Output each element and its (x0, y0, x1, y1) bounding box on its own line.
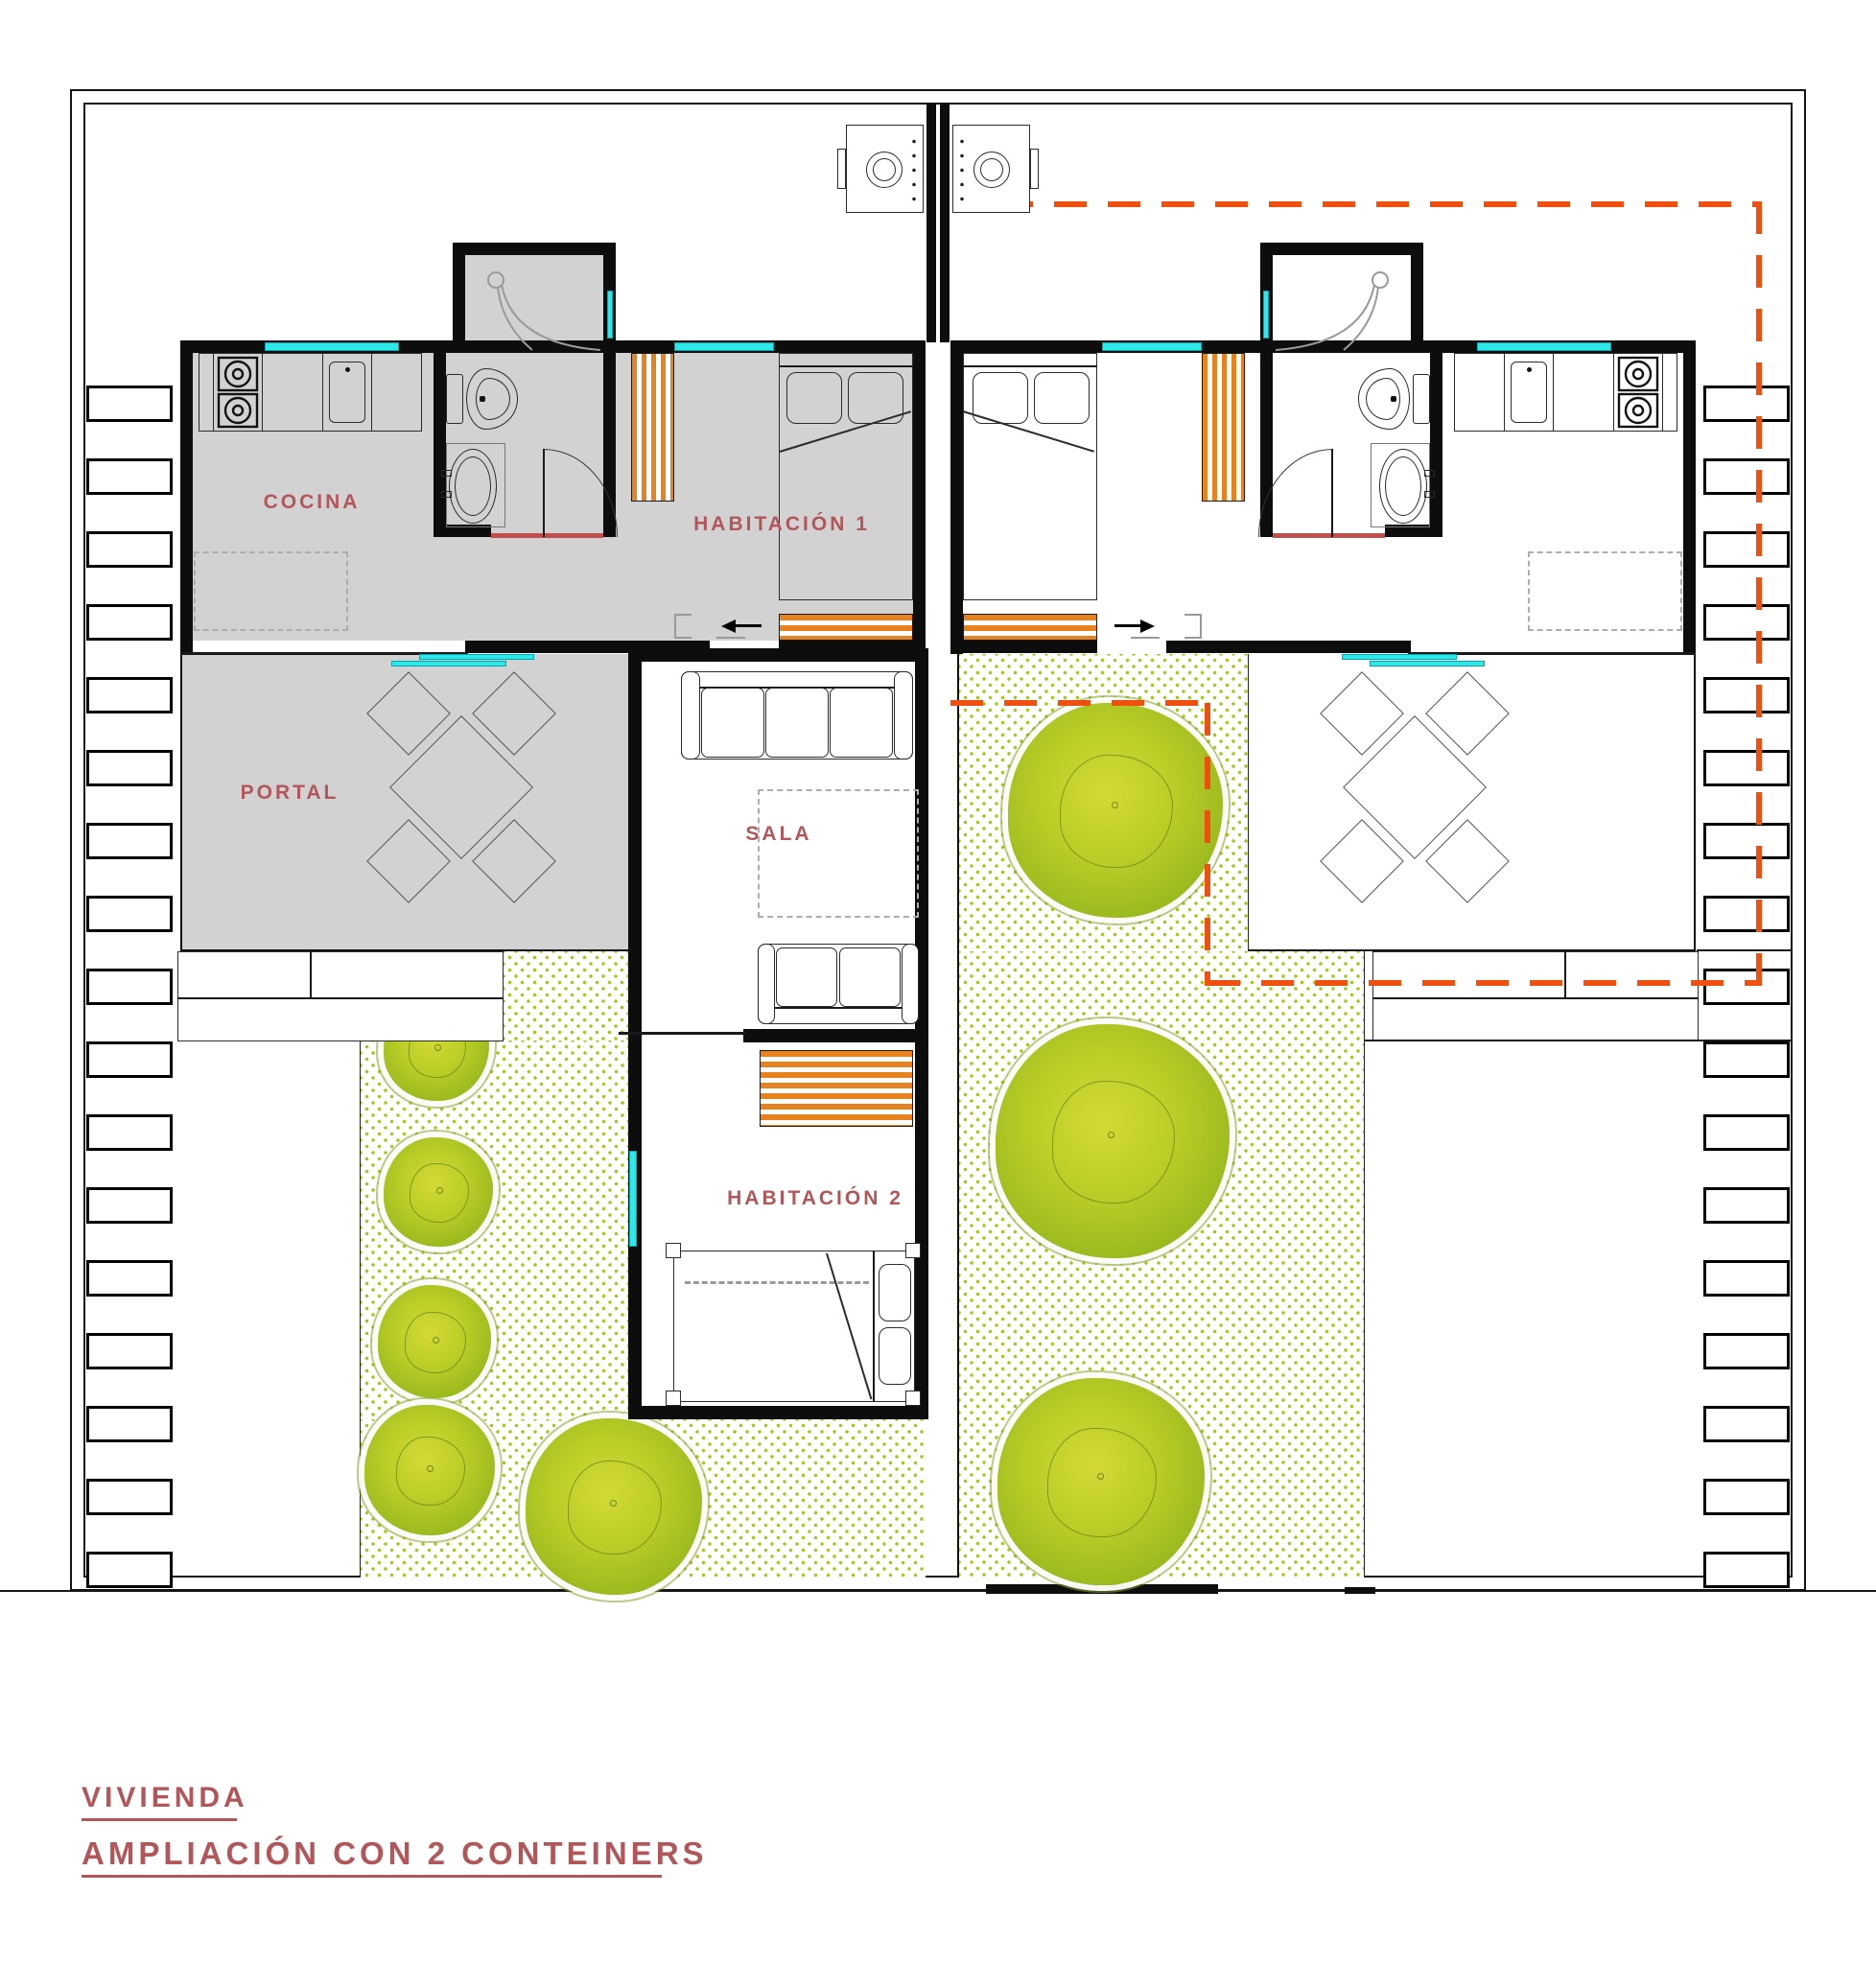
window-shower-right (1263, 291, 1269, 339)
party-wall (926, 103, 936, 342)
sofa2-back (775, 1007, 902, 1009)
drawing-title-line1: VIVIENDA (82, 1782, 248, 1814)
title-underline-2 (82, 1875, 662, 1878)
edge-box (86, 677, 173, 713)
edge-box (86, 1187, 173, 1224)
tree-small-4 (364, 1405, 495, 1535)
lavatory-left-tap (441, 491, 452, 498)
closet-left (631, 353, 674, 502)
tree-right-2 (996, 1024, 1230, 1258)
edge-box (86, 1552, 173, 1588)
sliding-door-portal-left (391, 661, 506, 666)
bed1-left-pillow (786, 372, 842, 424)
extension-outline-mid-h (950, 700, 1205, 706)
edge-box (86, 1260, 173, 1297)
toilet-right-tank (1413, 374, 1430, 424)
steps-right (1372, 951, 1699, 1041)
label-portal: PORTAL (194, 782, 386, 805)
sofa3-cushion (701, 688, 764, 758)
bed2-post (905, 1391, 921, 1406)
extension-outline-bottom (1208, 980, 1762, 986)
edge-box (1703, 750, 1790, 786)
toilet-left-tank (446, 374, 463, 424)
sofa2-arm (758, 944, 775, 1024)
drawing-title-line2: AMPLIACIÓN CON 2 CONTEINERS (82, 1835, 708, 1872)
extension-outline-right (1756, 201, 1762, 986)
steps-left-divider-v (310, 951, 312, 999)
washer-left-door-inner-icon (873, 158, 896, 181)
edge-box (86, 604, 173, 641)
edge-box (1703, 1333, 1790, 1369)
washer-right-door-inner-icon (980, 158, 1003, 181)
bed2-pillow (879, 1327, 911, 1385)
closet-right (1202, 353, 1245, 502)
bed1-right-pillow (1034, 372, 1090, 424)
window-hab1-left (674, 342, 774, 351)
lavatory-right-tap (1424, 491, 1435, 498)
wall (453, 243, 465, 352)
entry-step-right (1131, 637, 1160, 639)
garden-left-upper (504, 951, 628, 1041)
ledge-line (619, 1032, 745, 1035)
washer-right-buttons (957, 134, 967, 205)
sliding-door-portal-right (1370, 661, 1485, 666)
wall (434, 353, 446, 537)
sala-rug (758, 789, 919, 918)
edge-box (1703, 604, 1790, 641)
wall (1683, 340, 1696, 654)
lavatory-left-tap (441, 470, 452, 477)
sofa3-arm (681, 671, 700, 760)
label-habitacion2: HABITACIÓN 2 (671, 1187, 959, 1210)
shower-curtain-left-icon (465, 255, 603, 352)
edge-box (1703, 1114, 1790, 1151)
bed2-centerline (685, 1281, 869, 1284)
edge-box (1703, 677, 1790, 713)
washer-left-buttons (909, 134, 919, 205)
door-leaf-bath-left (543, 449, 545, 537)
lavatory-right-tap (1424, 470, 1435, 477)
bed2-post (666, 1391, 681, 1406)
bed1-left-headboard (779, 365, 913, 367)
edge-box (1703, 896, 1790, 932)
wall (180, 340, 193, 654)
edge-box (1703, 1552, 1790, 1588)
site-wall-segment (986, 1584, 1218, 1594)
tree-right-1 (1008, 703, 1223, 918)
wall (1260, 243, 1423, 255)
edge-box (86, 1479, 173, 1515)
edge-box (1703, 1479, 1790, 1515)
title-underline-1 (82, 1818, 237, 1821)
steps-right-divider-h (1372, 997, 1699, 999)
sofa3-arm (894, 671, 913, 760)
bed1-left-bench (779, 614, 913, 641)
bed2-post (666, 1243, 681, 1258)
label-sala: SALA (683, 823, 875, 846)
edge-box (86, 1041, 173, 1078)
future-counter-left (194, 551, 348, 631)
edge-box (1703, 1406, 1790, 1442)
sliding-door-portal-left (419, 654, 534, 660)
entry-step-left (716, 637, 745, 639)
entry-bracket-left (674, 614, 692, 639)
stove-left-burners-icon (213, 353, 263, 432)
wall (628, 648, 928, 662)
entry-bracket-right (1184, 614, 1202, 639)
kitchen-sink-right-drain (1527, 367, 1532, 372)
sofa3-cushion (830, 688, 893, 758)
wall (1430, 353, 1442, 537)
label-cocina: COCINA (216, 491, 408, 514)
slat-closet (760, 1050, 913, 1127)
edge-box (1703, 531, 1790, 568)
site-wall-segment-small (1345, 1587, 1375, 1594)
lavatory-right-basin-inner (1385, 456, 1421, 516)
wall (453, 243, 616, 255)
edge-box (86, 896, 173, 932)
edge-box (86, 386, 173, 422)
edge-box (86, 531, 173, 568)
edge-box (86, 1406, 173, 1442)
wall (1411, 243, 1423, 352)
edge-box (1703, 1187, 1790, 1224)
sliding-door-portal-right (1342, 654, 1457, 660)
extension-outline-mid-v (1205, 703, 1210, 986)
edge-box (1703, 969, 1790, 1005)
bed2-pillow (879, 1264, 911, 1321)
wall (913, 340, 926, 654)
wall (950, 340, 963, 654)
wall (950, 641, 1097, 653)
bed1-right-headboard (963, 365, 1097, 367)
future-counter-right (1528, 551, 1682, 631)
wall (628, 1406, 928, 1419)
tree-large-left (526, 1418, 702, 1595)
window-cocina-right (1477, 342, 1611, 351)
bed2-pillow-line (873, 1251, 875, 1402)
entry-arrow-right-line (1114, 624, 1141, 627)
entry-arrow-left-icon (721, 620, 736, 633)
entry-arrow-left-line (735, 624, 762, 627)
edge-box (86, 1114, 173, 1151)
edge-box (1703, 386, 1790, 422)
edge-box (86, 750, 173, 786)
steps-left-divider-h (177, 997, 504, 999)
edge-box (1703, 458, 1790, 495)
edge-box (1703, 1041, 1790, 1078)
edge-box (1703, 823, 1790, 859)
window-hab1-right (1102, 342, 1202, 351)
sofa3-cushion (765, 688, 829, 758)
paving-line-right (1365, 1040, 1793, 1041)
sofa2-cushion (839, 947, 901, 1007)
shower-curtain-right-icon (1273, 255, 1411, 352)
lavatory-left-basin-inner (455, 456, 491, 516)
label-habitacion1: HABITACIÓN 1 (638, 513, 926, 536)
extension-outline-top (1000, 201, 1762, 207)
edge-box (86, 823, 173, 859)
window-cocina-left (265, 342, 399, 351)
tree-right-3 (997, 1378, 1205, 1585)
edge-box (1703, 1260, 1790, 1297)
washer-right-latch (1030, 149, 1039, 189)
bed2-post (905, 1243, 921, 1258)
edge-box (86, 1333, 173, 1369)
window-shower-left (607, 291, 613, 339)
architectural-drawing: { "drawing": { "title_line1": "VIVIENDA"… (0, 0, 1876, 1964)
tree-small-3 (378, 1285, 491, 1398)
steps-right-divider-v (1564, 951, 1566, 999)
toilet-left-flush (480, 396, 485, 402)
edge-box (86, 458, 173, 495)
wall (743, 1029, 928, 1042)
entry-arrow-right-icon (1140, 620, 1155, 633)
toilet-right-flush (1391, 396, 1396, 402)
wall (1166, 641, 1411, 653)
kitchen-sink-left-drain (345, 367, 350, 372)
steps-left (177, 951, 504, 1041)
paving-line-right2 (1697, 949, 1793, 951)
sofa2-arm (902, 944, 919, 1024)
tree-small-2 (384, 1137, 493, 1247)
party-wall (940, 103, 950, 342)
washer-left-latch (837, 149, 846, 189)
door-leaf-bath-right (1331, 449, 1333, 537)
stove-right-burners-icon (1613, 353, 1663, 432)
window-hab2 (629, 1151, 637, 1247)
bed1-right-bench (963, 614, 1097, 641)
sofa2-cushion (776, 947, 837, 1007)
edge-box (86, 969, 173, 1005)
